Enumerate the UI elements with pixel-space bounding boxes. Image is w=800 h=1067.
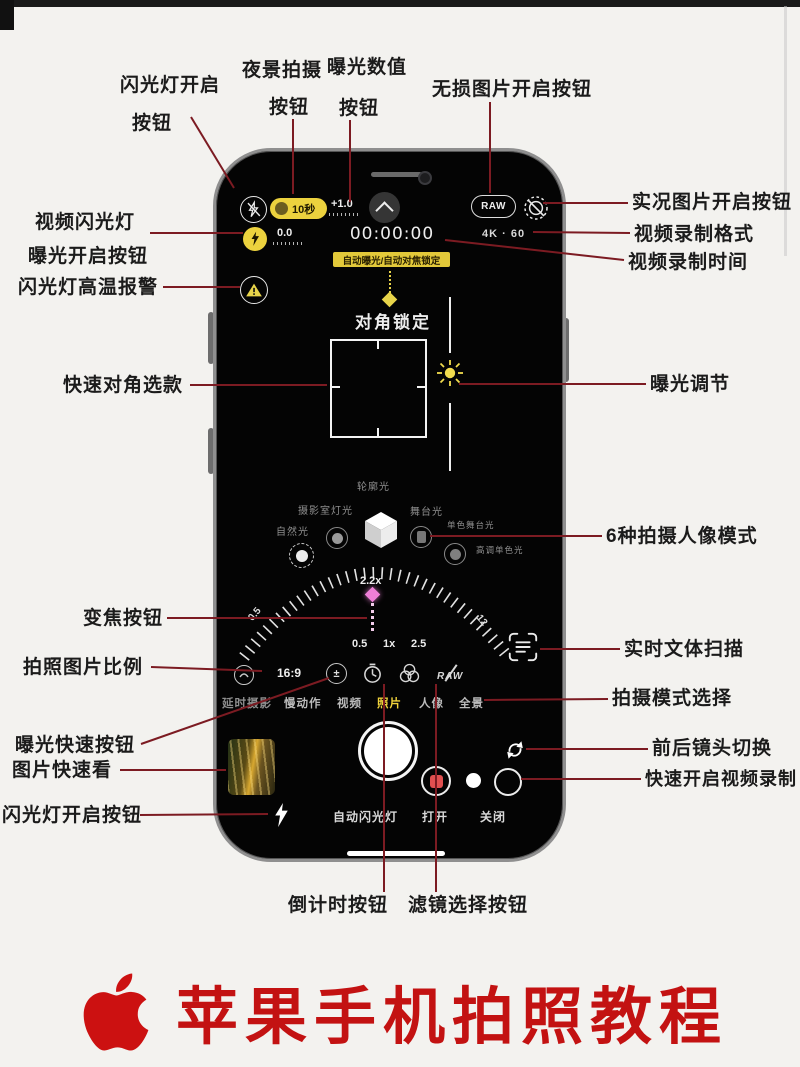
focus-tick-left [332, 386, 340, 388]
exposure-slider-track-bottom [449, 403, 451, 471]
label-mode-select: 拍摄模式选择 [612, 688, 732, 710]
label-exposure-adjust: 曝光调节 [650, 374, 730, 396]
label-flash-on-2: 按钮 [132, 113, 172, 135]
label-video-time: 视频录制时间 [628, 252, 748, 274]
exposure-scale [273, 242, 303, 245]
moon-icon [275, 202, 288, 215]
video-flash-indicator[interactable] [243, 227, 267, 251]
chevron-up-icon [375, 201, 393, 219]
camera-flip-icon[interactable] [504, 739, 526, 761]
label-zoom: 变焦按钮 [83, 608, 163, 630]
shutter-inner [364, 727, 412, 775]
lighting-studio-icon[interactable] [326, 527, 348, 549]
label-flip: 前后镜头切换 [652, 738, 772, 760]
ae-lock-diamond [382, 292, 398, 308]
flash-option-auto[interactable]: 自动闪光灯 [333, 808, 398, 825]
flash-option-on[interactable]: 打开 [422, 808, 448, 825]
timer-icon[interactable] [362, 663, 383, 684]
lighting-natural-label[interactable]: 自然光 [276, 523, 309, 538]
label-night-1: 夜景拍摄 [242, 60, 322, 82]
lighting-stage-mono-label[interactable]: 单色舞台光 [447, 519, 495, 531]
phone-frame: 10秒 +1.0 RAW 0.0 00:00:00 4K · 60 自动曝光/自… [213, 148, 566, 862]
lighting-cube-icon[interactable] [359, 508, 403, 552]
poster-title: 苹果手机拍照教程 [176, 966, 728, 1056]
label-diag-select: 快速对角选款 [63, 375, 183, 397]
label-quick-record: 快速开启视频录制 [645, 769, 797, 790]
lighting-highkey-mono-label[interactable]: 高调单色光 [476, 544, 524, 556]
tutorial-poster: 10秒 +1.0 RAW 0.0 00:00:00 4K · 60 自动曝光/自… [0, 0, 800, 1067]
mono-light-dot [450, 549, 461, 560]
zoom-preset-05[interactable]: 0.5 [352, 638, 367, 650]
white-dot-indicator [466, 773, 481, 788]
label-exposure-quick: 曝光快速按钮 [15, 735, 135, 757]
lighting-stage-icon[interactable] [410, 526, 432, 548]
ev-readout[interactable]: +1.0 [331, 198, 353, 210]
ev-scale [329, 213, 361, 216]
mode-pano[interactable]: 全景 [459, 695, 484, 711]
raw-off-icon[interactable]: RAW [437, 666, 475, 682]
ae-lock-pointer [389, 271, 391, 293]
record-stop-button[interactable] [421, 766, 451, 796]
label-timer: 倒计时按钮 [288, 895, 388, 917]
label-aspect: 拍照图片比例 [23, 657, 143, 679]
label-night-2: 按钮 [269, 97, 309, 119]
focus-tick-bottom [377, 428, 379, 436]
ae-af-lock-badge: 自动曝光/自动对焦锁定 [333, 252, 450, 267]
raw-badge-text: RAW [481, 201, 506, 212]
stage-light-dot [417, 531, 426, 543]
label-flash-temp: 闪光灯高温报警 [18, 277, 158, 299]
exposure-indicator[interactable]: 0.0 [277, 227, 292, 239]
ae-af-lock-text: 自动曝光/自动对焦锁定 [343, 253, 441, 267]
live-photo-icon[interactable] [523, 195, 549, 221]
label-ev-1: 曝光数值 [327, 57, 407, 79]
flash-option-off[interactable]: 关闭 [480, 808, 506, 825]
mode-timelapse[interactable]: 延时摄影 [222, 695, 272, 711]
mode-portrait[interactable]: 人像 [419, 695, 444, 711]
label-flash-bottom: 闪光灯开启按钮 [2, 805, 142, 827]
label-quick-view: 图片快速看 [12, 760, 112, 782]
label-exposure-on: 曝光开启按钮 [28, 246, 148, 268]
flash-toggle-icon[interactable] [271, 802, 291, 829]
right-edge-streak [784, 6, 787, 256]
label-video-format: 视频录制格式 [634, 224, 754, 246]
front-camera-lens [418, 171, 432, 185]
live-text-scan-icon[interactable] [506, 630, 540, 664]
exposure-quick-icon[interactable]: ± [326, 663, 347, 684]
focus-tick-top [377, 341, 379, 349]
quick-record-button[interactable] [494, 768, 522, 796]
photo-thumbnail[interactable] [228, 739, 275, 795]
label-ev-2: 按钮 [339, 98, 379, 120]
recording-timer: 00:00:00 [332, 224, 452, 244]
label-video-flash: 视频闪光灯 [35, 212, 135, 234]
night-duration: 10秒 [292, 201, 315, 217]
flash-warning-icon [240, 276, 268, 304]
night-mode-button[interactable]: 10秒 [270, 198, 327, 219]
video-format-readout[interactable]: 4K · 60 [482, 228, 525, 240]
flash-off-icon[interactable] [240, 196, 267, 223]
aspect-ratio-button[interactable]: 16:9 [277, 666, 301, 680]
speaker-bar [371, 172, 422, 177]
lighting-contour-label[interactable]: 轮廓光 [357, 478, 390, 493]
label-flash-on-1: 闪光灯开启 [120, 75, 220, 97]
lighting-stage-label[interactable]: 舞台光 [410, 503, 443, 518]
zoom-marker-tail [371, 603, 374, 631]
home-indicator[interactable] [347, 851, 445, 856]
exposure-slider-track-top [449, 297, 451, 353]
photographic-styles-icon[interactable] [234, 665, 254, 685]
mode-photo[interactable]: 照片 [377, 695, 402, 711]
focus-frame[interactable] [330, 339, 427, 438]
label-filter: 滤镜选择按钮 [408, 895, 528, 917]
label-live-text: 实时文体扫描 [624, 639, 744, 661]
studio-light-dot [332, 533, 343, 544]
top-border-strip [0, 0, 800, 7]
hud-expand-button[interactable] [369, 192, 400, 223]
label-live-photo: 实况图片开启按钮 [632, 192, 792, 214]
exposure-sun-handle[interactable] [435, 358, 465, 388]
lighting-studio-label[interactable]: 摄影室灯光 [298, 502, 353, 517]
apple-logo-icon [76, 968, 156, 1056]
lock-caption: 对角锁定 [318, 308, 468, 333]
focus-tick-right [417, 386, 425, 388]
corner-block [0, 0, 14, 30]
mode-video[interactable]: 视频 [337, 695, 362, 711]
raw-badge-button[interactable]: RAW [471, 195, 516, 218]
label-portrait-modes: 6种拍摄人像模式 [606, 526, 758, 548]
label-raw: 无损图片开启按钮 [432, 79, 592, 101]
zoom-preset-25[interactable]: 2.5 [411, 638, 426, 650]
zoom-preset-1x[interactable]: 1x [383, 638, 395, 650]
record-square [430, 775, 443, 788]
mode-slomo[interactable]: 慢动作 [284, 695, 322, 711]
shutter-button[interactable] [358, 721, 418, 781]
filters-icon[interactable] [398, 662, 421, 685]
thumbnail-light-streaks [228, 739, 275, 795]
zoom-current-readout: 2.2x [360, 575, 381, 587]
